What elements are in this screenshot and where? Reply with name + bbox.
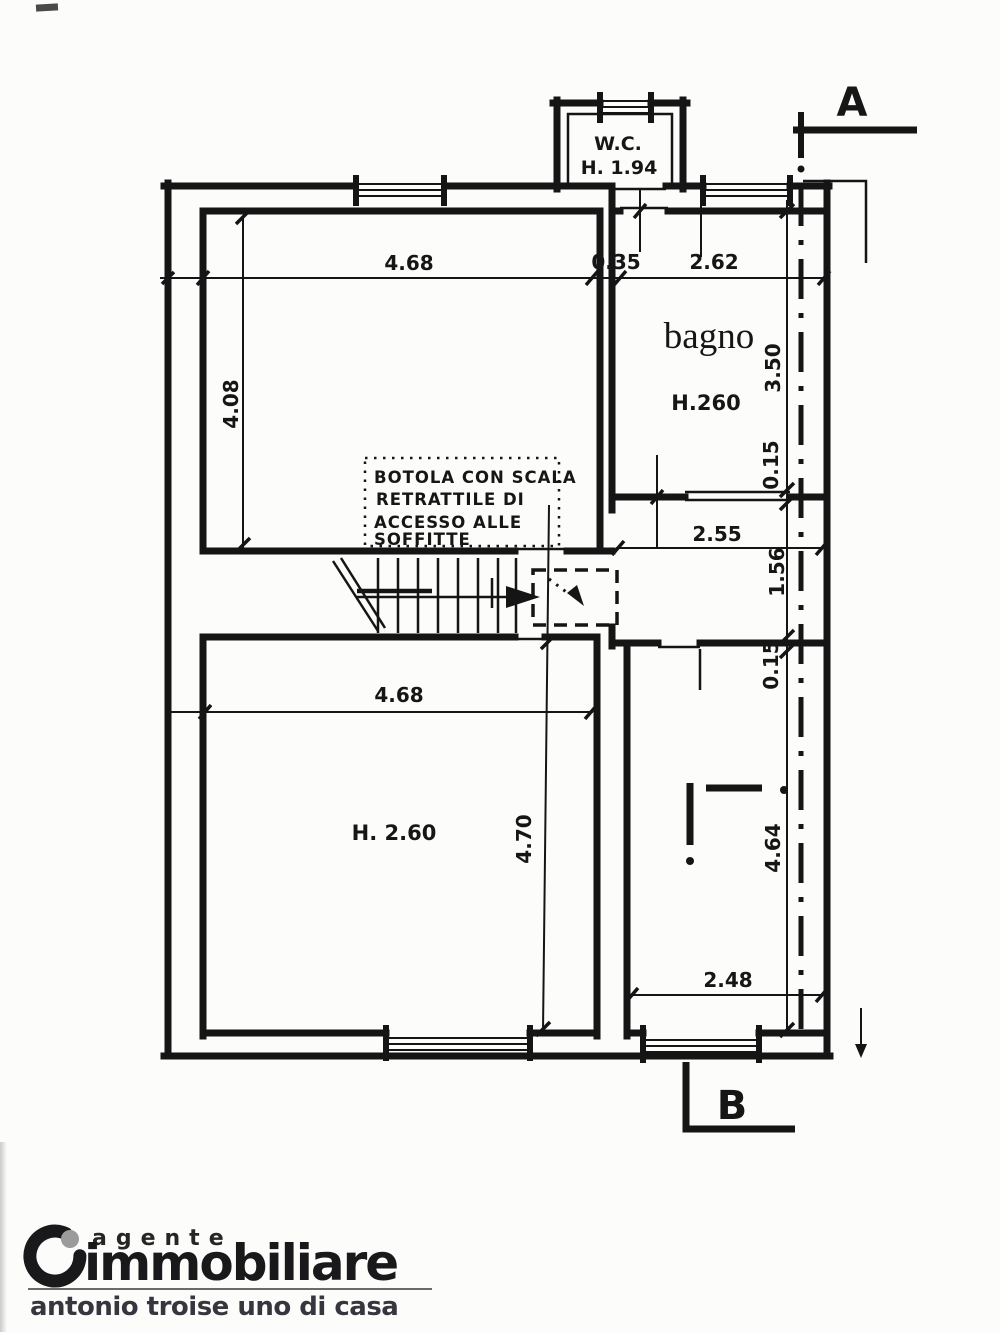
section-line-a xyxy=(793,112,917,1040)
attic-note-line-2: RETRATTILE DI xyxy=(376,490,525,509)
dimension-lines xyxy=(160,190,861,1050)
wc-room-label: W.C. xyxy=(594,133,642,155)
dim-bagno-wall: 0.15 xyxy=(759,440,783,489)
attic-note-line-4: SOFFITTE xyxy=(374,530,471,549)
stair-direction-arrow xyxy=(356,578,540,608)
attic-note-text: BOTOLA CON SCALA RETRATTILE DI ACCESSO A… xyxy=(374,468,577,549)
staircase-treads xyxy=(333,558,516,633)
brand-tagline: antonio troise uno di casa xyxy=(30,1292,398,1322)
logo-divider xyxy=(28,1288,432,1290)
brand-main-label: immobiliare xyxy=(84,1234,397,1292)
bagno-room-label: bagno xyxy=(664,316,754,357)
section-marker-a: A xyxy=(837,80,868,126)
attic-note-line-1: BOTOLA CON SCALA xyxy=(374,468,577,487)
dimension-arrowhead xyxy=(855,1044,867,1058)
dim-hall-height: 1.56 xyxy=(765,547,789,596)
dim-right-room-width: 2.48 xyxy=(703,968,752,992)
trapdoor-hatch xyxy=(533,570,617,625)
window-posts xyxy=(356,95,790,1060)
wc-height-label: H. 1.94 xyxy=(581,157,658,179)
dim-bagno-height: 3.50 xyxy=(761,343,785,392)
bottom-left-room-height-label: H. 2.60 xyxy=(352,821,437,845)
window-glazing xyxy=(356,101,790,1052)
dim-hall-width: 2.55 xyxy=(692,522,741,546)
dim-wc-offset: 0.35 xyxy=(591,250,640,274)
dim-top-room-height: 4.08 xyxy=(219,379,243,428)
dim-bottom-room-height: 4.70 xyxy=(512,814,536,863)
floor-plan-canvas: A B W.C. H. 1.94 bagno H.260 H. 2.60 BOT… xyxy=(0,0,1000,1185)
dim-bottom-room-width: 4.68 xyxy=(374,683,423,707)
dim-right-wall: 0.15 xyxy=(759,640,783,689)
scanned-floor-plan-page: A B W.C. H. 1.94 bagno H.260 H. 2.60 BOT… xyxy=(0,0,1000,1333)
bagno-height-label: H.260 xyxy=(671,391,740,415)
dim-top-room-width: 4.68 xyxy=(384,251,433,275)
dim-right-room-height: 4.64 xyxy=(761,823,785,872)
dim-bagno-width: 2.62 xyxy=(689,250,738,274)
section-marker-b: B xyxy=(717,1083,748,1129)
